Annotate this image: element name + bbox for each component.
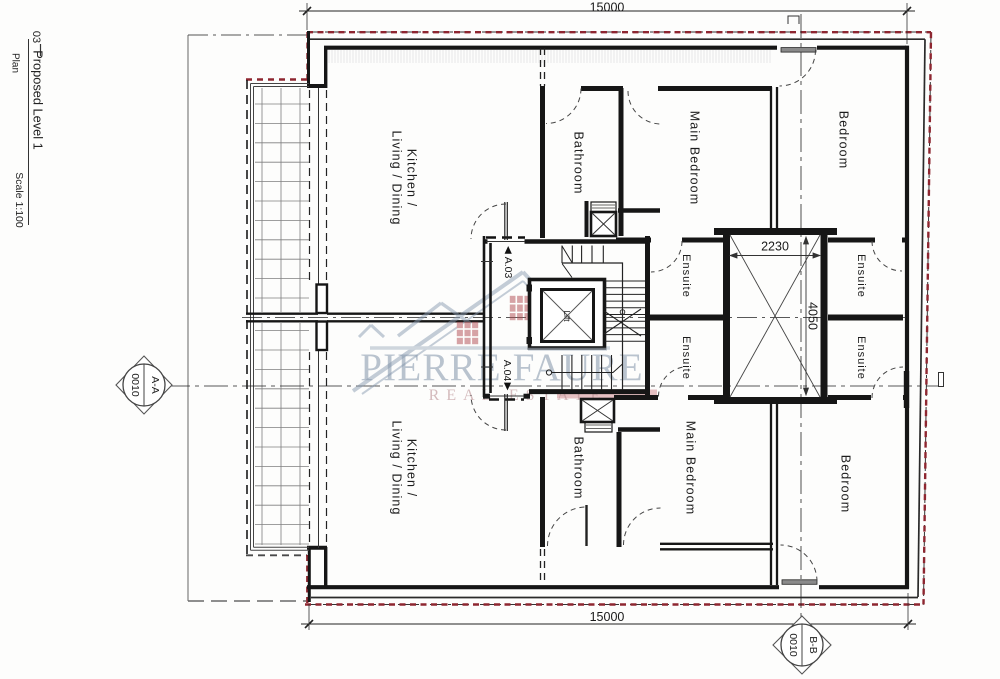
svg-text:Lift: Lift [562, 310, 572, 322]
svg-text:A.04: A.04 [501, 360, 513, 382]
svg-text:Ensuite: Ensuite [680, 254, 692, 298]
svg-text:15000: 15000 [590, 0, 625, 14]
svg-text:Living / Dining: Living / Dining [390, 420, 404, 515]
svg-text:Kitchen /: Kitchen / [405, 439, 419, 498]
svg-text:4050: 4050 [806, 302, 820, 330]
svg-text:Main Bedroom: Main Bedroom [688, 111, 702, 206]
svg-text:Bathroom: Bathroom [572, 132, 586, 195]
svg-text:Kitchen /: Kitchen / [405, 149, 419, 208]
svg-text:0010: 0010 [787, 633, 799, 657]
svg-text:Living / Dining: Living / Dining [390, 130, 404, 225]
svg-text:Proposed Level 1: Proposed Level 1 [31, 50, 46, 150]
svg-text:03: 03 [30, 31, 42, 43]
svg-text:Ensuite: Ensuite [855, 336, 867, 380]
svg-text:Bedroom: Bedroom [839, 455, 853, 513]
svg-text:15000: 15000 [590, 610, 625, 624]
svg-text:Bedroom: Bedroom [837, 111, 851, 169]
svg-text:Ensuite: Ensuite [680, 336, 692, 380]
svg-text:Ensuite: Ensuite [855, 254, 867, 298]
svg-text:B-B: B-B [807, 636, 819, 654]
svg-text:Scale 1:100: Scale 1:100 [13, 172, 25, 228]
svg-text:A.03: A.03 [502, 257, 514, 279]
svg-text:2230: 2230 [761, 239, 789, 253]
svg-text:Main Bedroom: Main Bedroom [684, 421, 698, 516]
svg-text:0010: 0010 [129, 373, 141, 397]
svg-text:A-A: A-A [149, 376, 161, 394]
svg-text:Plan: Plan [9, 53, 20, 73]
svg-text:Bathroom: Bathroom [572, 437, 586, 500]
